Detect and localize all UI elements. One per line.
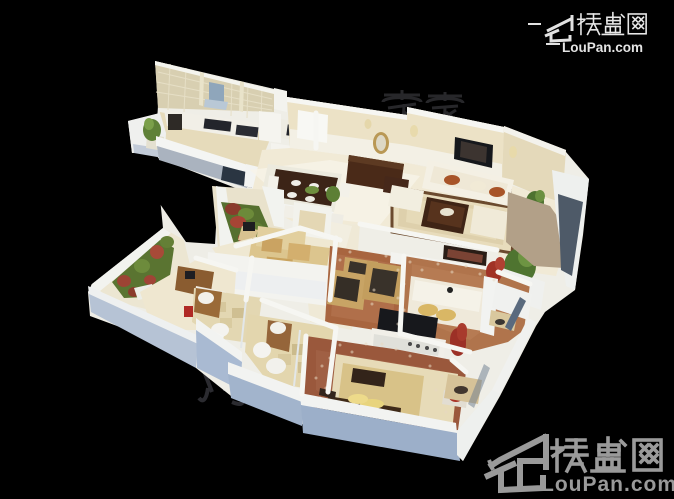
svg-text:LouPan.com: LouPan.com — [562, 40, 643, 55]
svg-text:LouPan.com: LouPan.com — [541, 473, 674, 496]
